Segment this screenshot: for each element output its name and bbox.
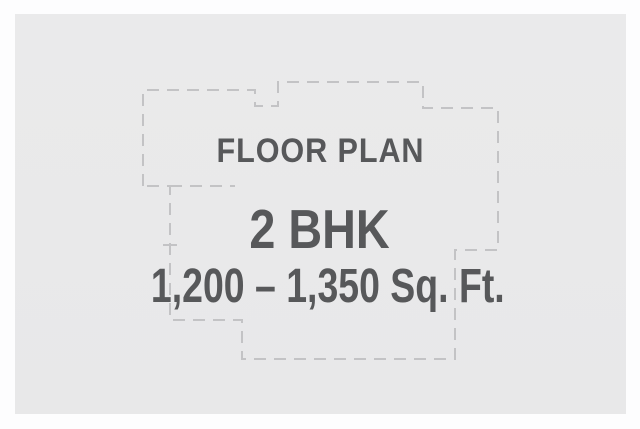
floorplan-heading-label: FLOOR PLAN — [216, 134, 424, 168]
unit-type: 2 BHK — [0, 202, 640, 257]
area-range: 1,200 – 1,350 Sq. Ft. — [0, 263, 640, 311]
image-frame: FLOOR PLAN 2 BHK 1,200 – 1,350 Sq. Ft. — [0, 0, 640, 429]
unit-type-label: 2 BHK — [250, 202, 390, 257]
area-range-label: 1,200 – 1,350 Sq. Ft. — [151, 263, 505, 311]
floorplan-heading: FLOOR PLAN — [0, 134, 640, 168]
